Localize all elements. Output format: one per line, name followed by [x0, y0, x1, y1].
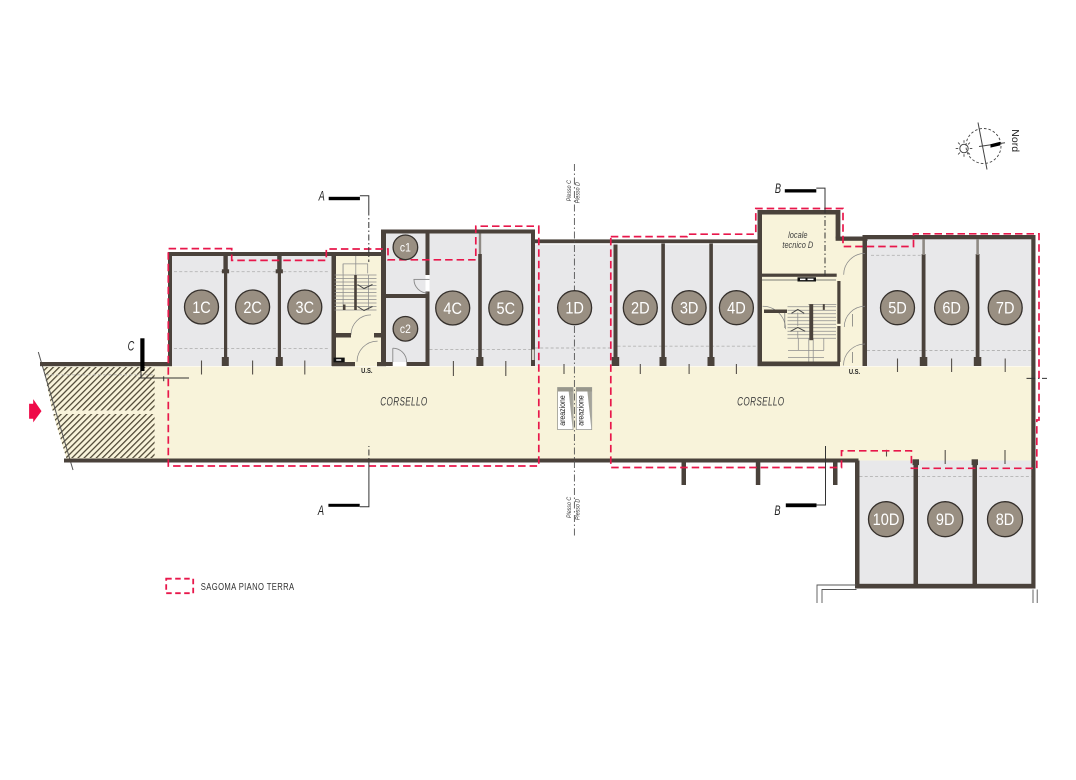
- svg-text:Plesso D: Plesso D: [574, 498, 582, 520]
- svg-text:B: B: [774, 502, 780, 519]
- svg-text:U.S.: U.S.: [361, 368, 372, 376]
- svg-text:areazione: areazione: [557, 395, 567, 426]
- svg-text:SAGOMA PIANO TERRA: SAGOMA PIANO TERRA: [201, 581, 295, 592]
- svg-text:2D: 2D: [631, 300, 650, 318]
- svg-text:Plesso C: Plesso C: [565, 496, 573, 518]
- svg-text:5D: 5D: [888, 300, 907, 318]
- svg-text:3D: 3D: [680, 300, 699, 318]
- svg-text:5C: 5C: [497, 300, 516, 318]
- svg-text:c2: c2: [400, 323, 411, 336]
- svg-text:9D: 9D: [936, 511, 955, 529]
- svg-text:A: A: [318, 188, 325, 205]
- svg-text:Plesso C: Plesso C: [565, 180, 573, 202]
- svg-text:7D: 7D: [996, 300, 1015, 318]
- svg-text:CORSELLO: CORSELLO: [737, 396, 784, 409]
- svg-text:tecnico D: tecnico D: [782, 239, 813, 250]
- svg-text:B: B: [775, 180, 781, 197]
- svg-text:1D: 1D: [565, 300, 584, 318]
- svg-text:4D: 4D: [727, 300, 746, 318]
- svg-text:C: C: [128, 338, 135, 355]
- svg-text:8D: 8D: [996, 511, 1015, 529]
- svg-text:6D: 6D: [942, 300, 961, 318]
- svg-text:4C: 4C: [443, 300, 462, 318]
- svg-text:CORSELLO: CORSELLO: [380, 396, 427, 409]
- svg-text:1C: 1C: [192, 299, 211, 317]
- svg-text:Plesso D: Plesso D: [574, 182, 582, 204]
- svg-text:areazione: areazione: [576, 395, 586, 426]
- svg-text:A: A: [317, 502, 324, 519]
- svg-text:10D: 10D: [873, 511, 900, 529]
- svg-text:U.S.: U.S.: [849, 368, 860, 376]
- svg-text:c1: c1: [400, 242, 411, 255]
- svg-text:3C: 3C: [296, 299, 315, 317]
- svg-text:Nord: Nord: [1009, 129, 1021, 152]
- svg-text:2C: 2C: [243, 299, 262, 317]
